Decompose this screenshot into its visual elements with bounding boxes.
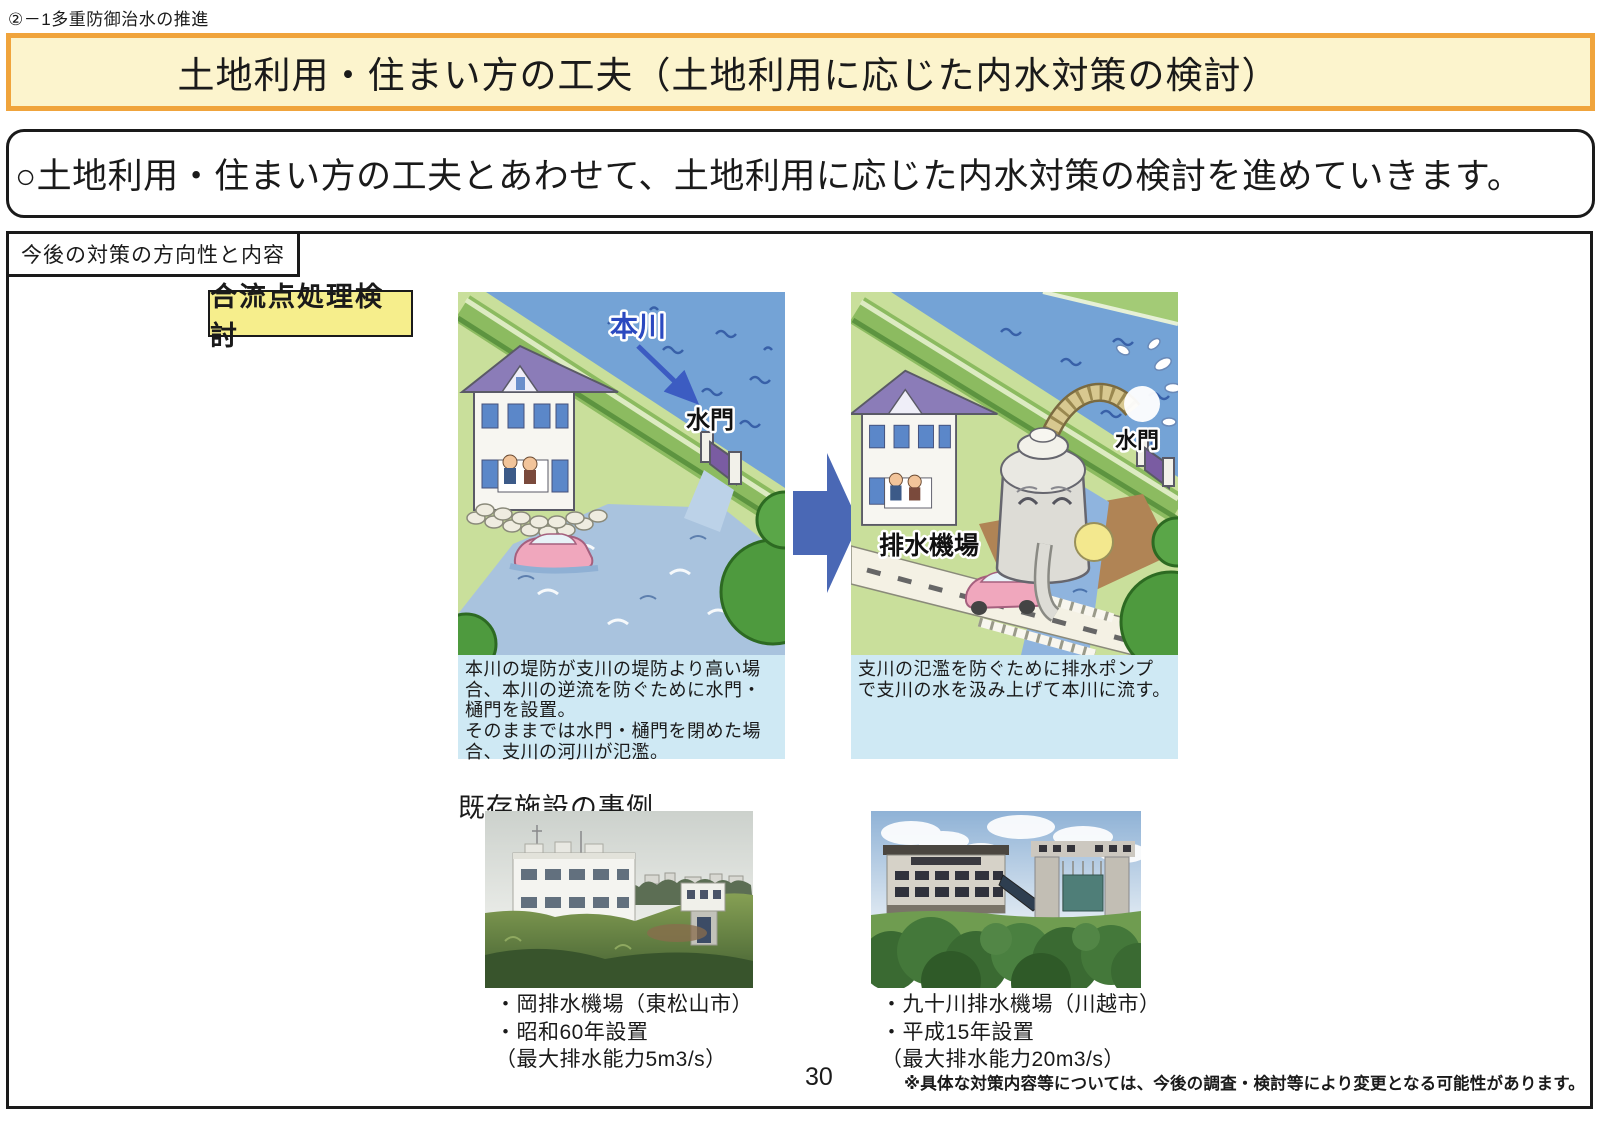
- page-title: 土地利用・住まい方の工夫（土地利用に応じた内水対策の検討）: [178, 45, 1280, 99]
- figure-before-caption: 本川の堤防が支川の堤防より高い場合、本川の逆流を防ぐために水門・樋門を設置。 そ…: [458, 655, 785, 759]
- summary-box: ○土地利用・住まい方の工夫とあわせて、土地利用に応じた内水対策の検討を進めていき…: [6, 129, 1595, 218]
- main-river-label: 本川: [610, 311, 666, 342]
- content-box: 今後の対策の方向性と内容 合流点処理検討: [6, 231, 1593, 1109]
- section-label: 今後の対策の方向性と内容: [6, 231, 300, 277]
- illustration-flood-before: 本川 水門: [458, 292, 785, 655]
- photo2-caption-line: ・平成15年設置: [881, 1019, 1161, 1047]
- summary-text: ○土地利用・住まい方の工夫とあわせて、土地利用に応じた内水対策の検討を進めていき…: [15, 148, 1522, 199]
- photo2-caption-line: ・九十川排水機場（川越市）: [881, 991, 1161, 1019]
- pump-station-building: [883, 845, 1009, 913]
- photo-kujukawa-pump-station: [871, 811, 1141, 988]
- photo1-caption-line: （最大排水能力5m3/s）: [495, 1046, 753, 1074]
- slide-page: ②－1多重防御治水の推進 土地利用・住まい方の工夫（土地利用に応じた内水対策の検…: [0, 0, 1600, 1131]
- illustration-pump-after: 排水機場 水門: [851, 292, 1178, 655]
- confluence-tag: 合流点処理検討: [208, 290, 413, 337]
- figure-after-caption: 支川の氾濫を防ぐために排水ポンプで支川の水を汲み上げて本川に流す。: [851, 655, 1178, 759]
- photo-oka-pump-station: [485, 811, 753, 988]
- photo1-caption-line: ・昭和60年設置: [495, 1019, 753, 1047]
- footer-disclaimer: ※具体な対策内容等については、今後の調査・検討等により変更となる可能性があります…: [904, 1070, 1585, 1094]
- figure-before: 本川 水門 本川の堤防が支川の堤防より高い場合、本川の逆流を防ぐために水門・樋門…: [458, 292, 785, 759]
- gate-label: 水門: [686, 407, 734, 434]
- transition-arrow-icon: [793, 453, 859, 593]
- page-number: 30: [805, 1063, 833, 1092]
- figure-after: 排水機場 水門 支川の氾濫を防ぐために排水ポンプで支川の水を汲み上げて本川に流す…: [851, 292, 1178, 759]
- photo1-caption-line: ・岡排水機場（東松山市）: [495, 991, 753, 1019]
- gate-label: 水門: [1115, 428, 1159, 453]
- title-banner: 土地利用・住まい方の工夫（土地利用に応じた内水対策の検討）: [6, 33, 1595, 111]
- pump-station-label: 排水機場: [879, 532, 979, 560]
- photo1-caption: ・岡排水機場（東松山市） ・昭和60年設置 （最大排水能力5m3/s）: [495, 991, 753, 1074]
- photo2-caption: ・九十川排水機場（川越市） ・平成15年設置 （最大排水能力20m3/s）: [881, 991, 1161, 1074]
- slide-section-number: ②－1多重防御治水の推進: [8, 5, 209, 30]
- foreground-trees: [871, 917, 1141, 988]
